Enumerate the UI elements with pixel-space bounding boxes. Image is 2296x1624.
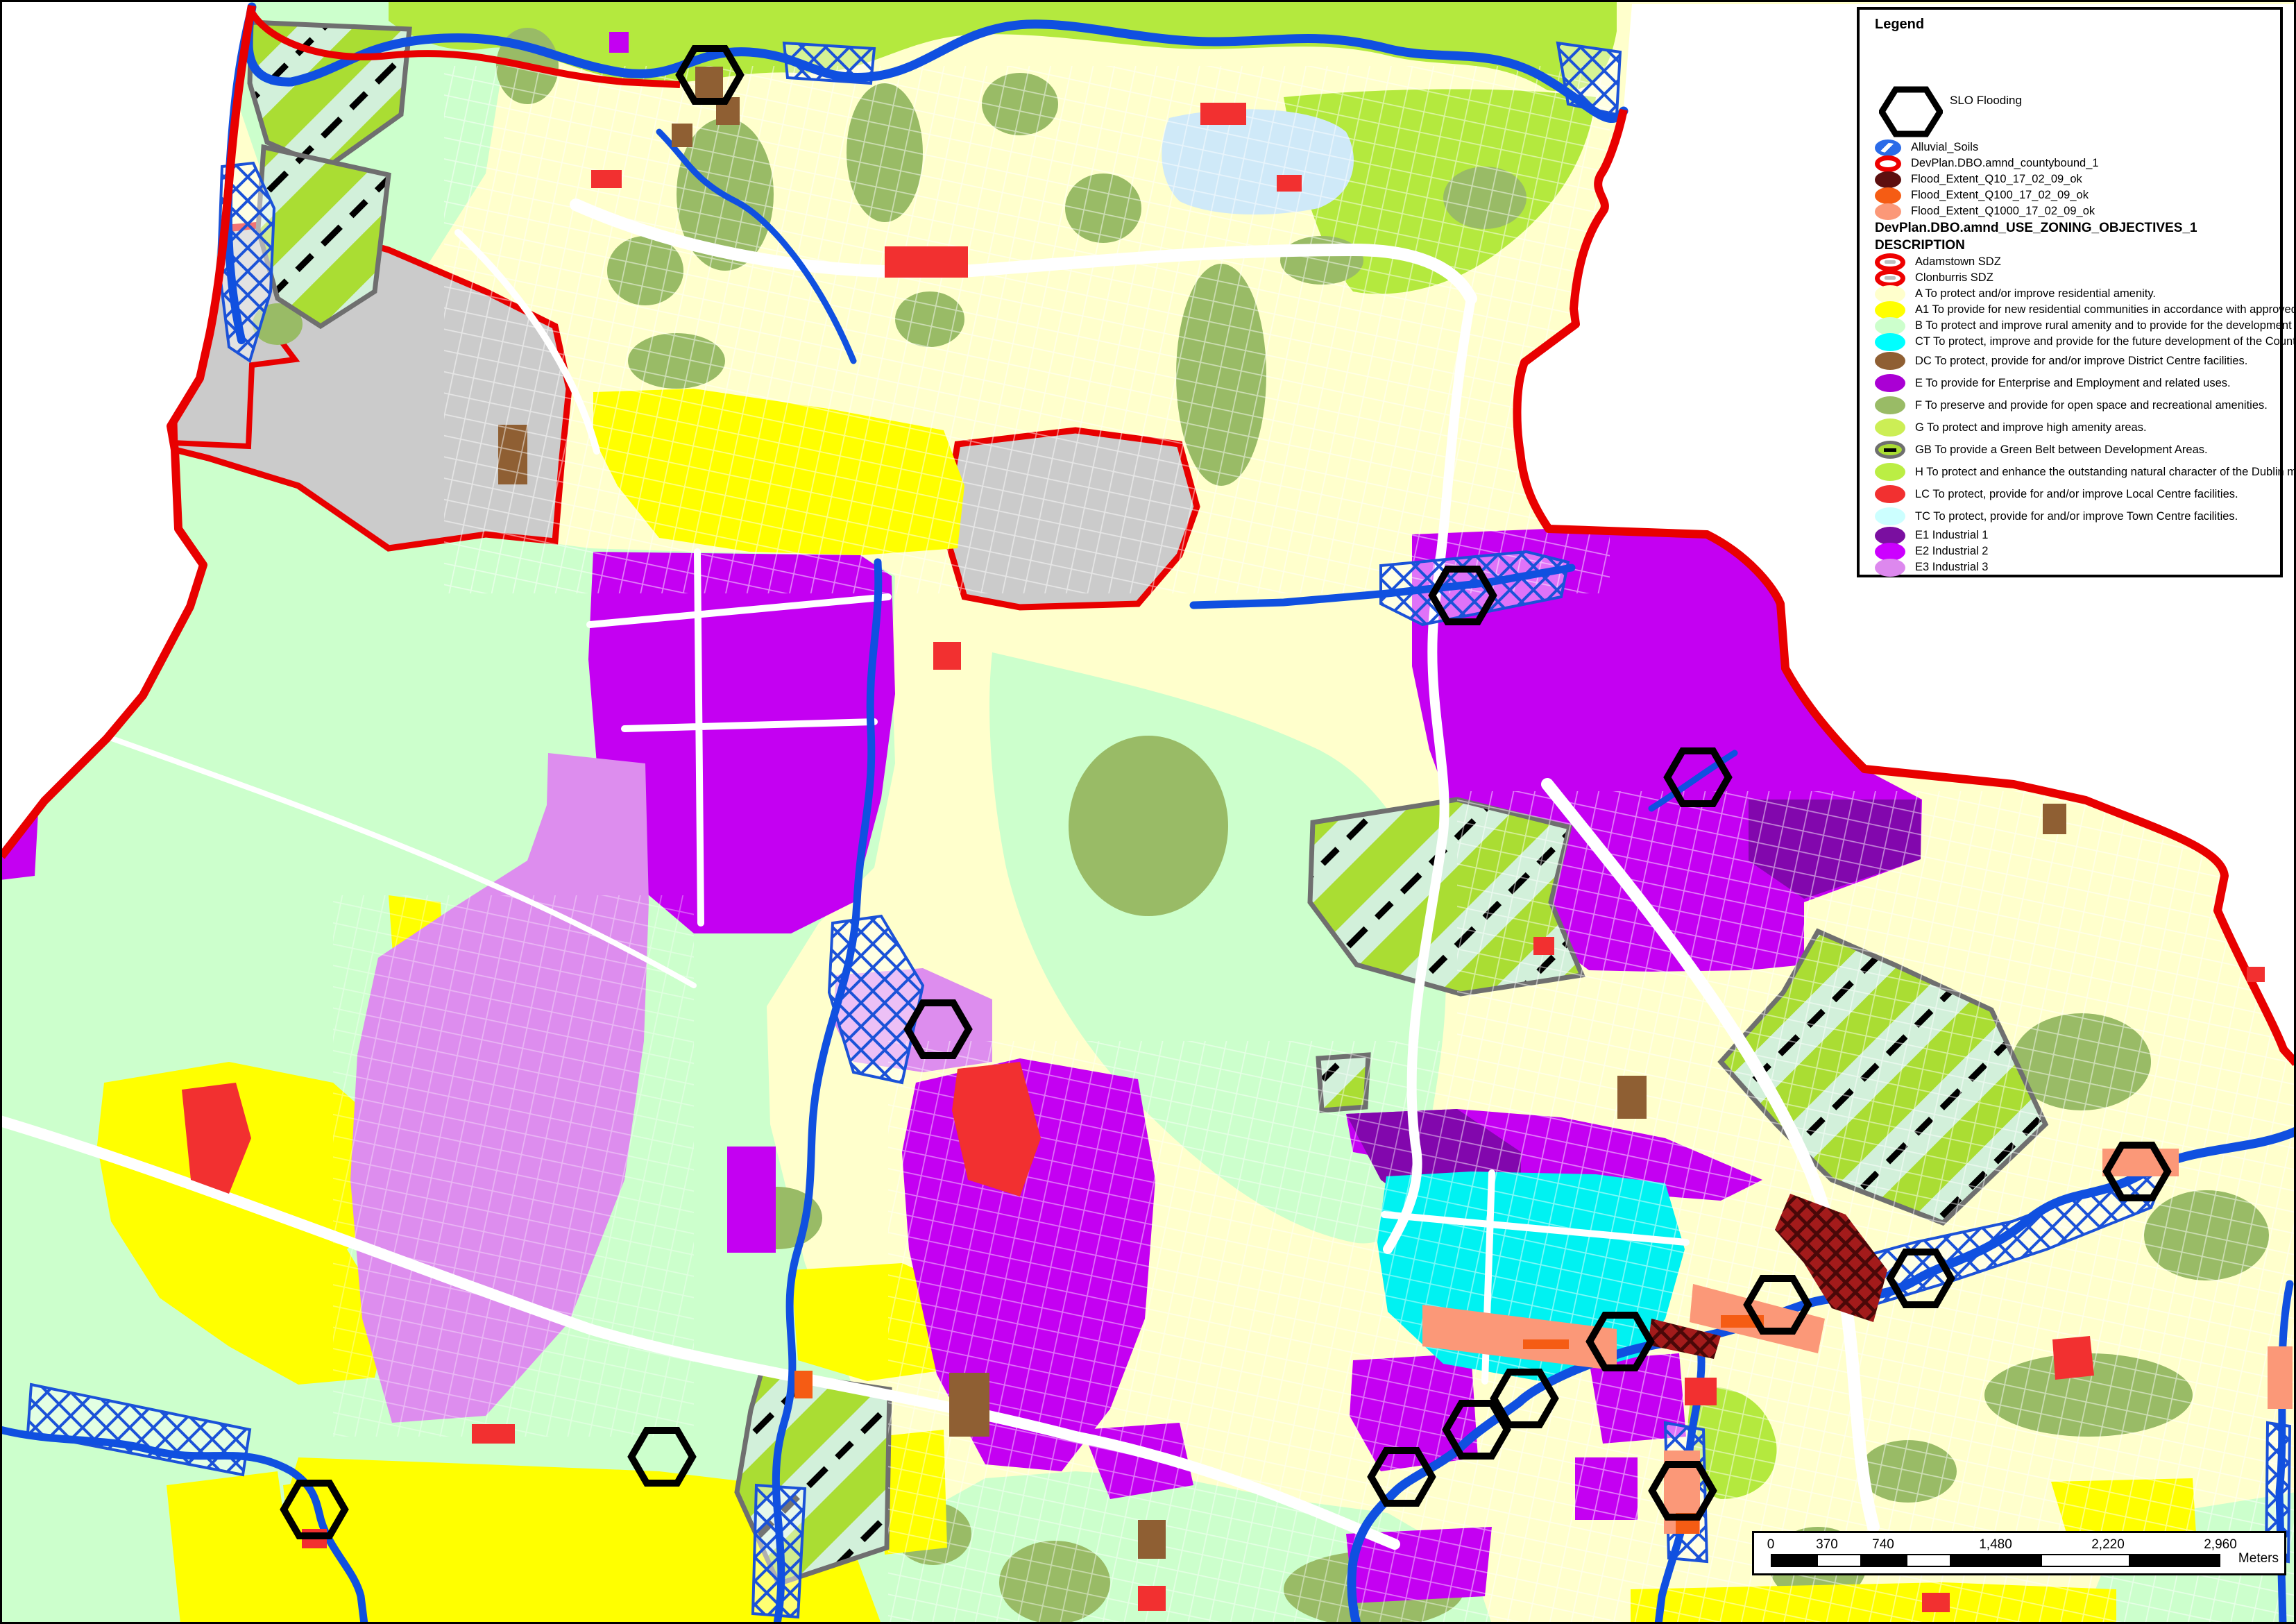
legend-row-zone-e3: E3 Industrial 3 [1875, 559, 2280, 575]
legend-row-zone-g: G To protect and improve high amenity ar… [1875, 416, 2280, 439]
legend-row-zone-e: E To provide for Enterprise and Employme… [1875, 372, 2280, 394]
legend-layer-heading: DevPlan.DBO.amnd_USE_ZONING_OBJECTIVES_1 [1875, 219, 2280, 237]
zone-e1-swatch-icon [1875, 527, 1905, 545]
zone-g-swatch-icon [1875, 418, 1905, 437]
flood-q10-swatch-icon [1875, 171, 1901, 188]
clonburris-sdz-swatch-icon [1875, 269, 1905, 287]
scale-bar-segments [1771, 1554, 2220, 1567]
zone-f-swatch-icon [1875, 396, 1905, 414]
scale-bar-ticks: 0 370 740 1,480 2,220 2,960 [1771, 1537, 2220, 1554]
zone-ct-swatch-icon [1875, 333, 1905, 351]
legend-row-zone-a1: A1 To provide for new residential commun… [1875, 302, 2280, 318]
flood-q100-swatch-icon [1875, 187, 1901, 204]
legend-slo-label: SLO Flooding [1950, 94, 2022, 108]
scale-bar: 0 370 740 1,480 2,220 2,960 Meters [1752, 1531, 2286, 1575]
legend-row-zone-f: F To preserve and provide for open space… [1875, 394, 2280, 416]
zone-e3-swatch-icon [1875, 559, 1905, 577]
legend-row-zone-lc: LC To protect, provide for and/or improv… [1875, 483, 2280, 505]
zone-a-swatch-icon [1875, 285, 1905, 303]
scale-bar-unit: Meters [2238, 1551, 2279, 1566]
legend-row-clonburris-sdz: Clonburris SDZ [1875, 270, 2280, 286]
zone-gb-swatch-icon [1875, 441, 1905, 459]
legend-row-zone-a: A To protect and/or improve residential … [1875, 286, 2280, 302]
flood-q1000-swatch-icon [1875, 203, 1901, 220]
legend-slo-row: SLO Flooding [1879, 37, 2280, 139]
legend-row-flood-q100: Flood_Extent_Q100_17_02_09_ok [1875, 187, 2280, 203]
zone-h-swatch-icon [1875, 463, 1905, 481]
zone-lc-swatch-icon [1875, 485, 1905, 503]
zone-a1-swatch-icon [1875, 301, 1905, 319]
legend-row-zone-h: H To protect and enhance the outstanding… [1875, 461, 2280, 483]
legend-row-zone-e1: E1 Industrial 1 [1875, 527, 2280, 543]
legend-row-zone-tc: TC To protect, provide for and/or improv… [1875, 505, 2280, 527]
legend-row-zone-gb: GB To provide a Green Belt between Devel… [1875, 439, 2280, 461]
legend-row-alluvial: Alluvial_Soils [1875, 139, 2280, 155]
legend-row-countybound: DevPlan.DBO.amnd_countybound_1 [1875, 155, 2280, 171]
zone-e2-swatch-icon [1875, 543, 1905, 561]
legend-row-zone-dc: DC To protect, provide for and/or improv… [1875, 350, 2280, 372]
alluvial-soils-swatch-icon [1875, 139, 1901, 156]
zone-dc-swatch-icon [1875, 352, 1905, 370]
adamstown-sdz-swatch-icon [1875, 253, 1905, 271]
zone-e-swatch-icon [1875, 374, 1905, 392]
map-page: Legend SLO Flooding Alluvial_Soils DevPl… [0, 0, 2296, 1624]
legend-row-zone-ct: CT To protect, improve and provide for t… [1875, 334, 2280, 350]
legend-description-heading: DESCRIPTION [1875, 237, 2280, 254]
slo-flooding-hexagon-icon [1879, 84, 1943, 139]
legend-row-zone-b: B To protect and improve rural amenity a… [1875, 318, 2280, 334]
legend-row-flood-q1000: Flood_Extent_Q1000_17_02_09_ok [1875, 203, 2280, 219]
legend-title: Legend [1875, 17, 2280, 33]
county-boundary-swatch-icon [1875, 155, 1901, 172]
zone-b-swatch-icon [1875, 317, 1905, 335]
legend-panel: Legend SLO Flooding Alluvial_Soils DevPl… [1857, 7, 2283, 577]
legend-row-adamstown-sdz: Adamstown SDZ [1875, 254, 2280, 270]
zone-tc-swatch-icon [1875, 507, 1905, 525]
legend-row-zone-e2: E2 Industrial 2 [1875, 543, 2280, 559]
legend-row-flood-q10: Flood_Extent_Q10_17_02_09_ok [1875, 171, 2280, 187]
